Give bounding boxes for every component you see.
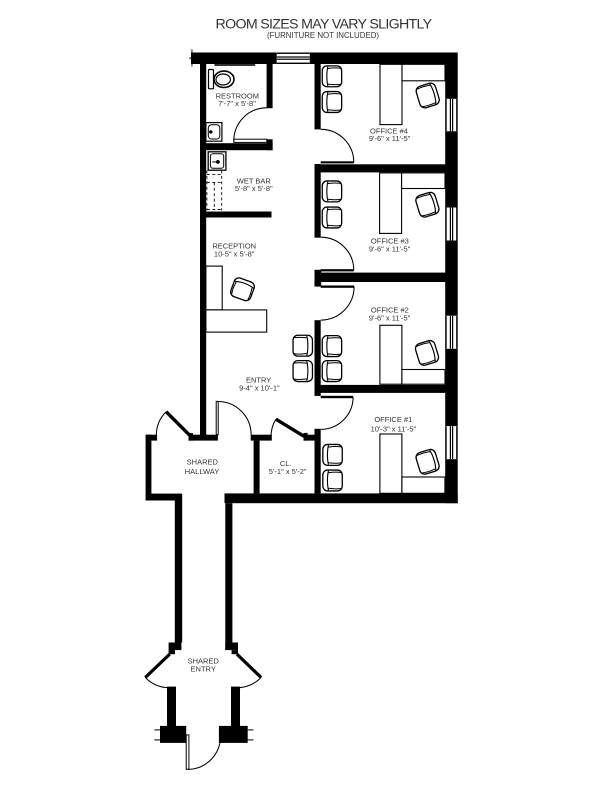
svg-text:10'-3" x 11'-5": 10'-3" x 11'-5" [371, 425, 417, 434]
svg-text:OFFICE #1: OFFICE #1 [374, 415, 412, 424]
svg-text:HALLWAY: HALLWAY [185, 467, 219, 476]
svg-text:9-4" x 10'-1": 9-4" x 10'-1" [239, 383, 280, 392]
svg-text:10-5" x 5'-8": 10-5" x 5'-8" [214, 249, 255, 258]
svg-text:9'-6" x 11'-5": 9'-6" x 11'-5" [369, 313, 411, 322]
svg-text:5'-8" x 5'-8": 5'-8" x 5'-8" [235, 184, 273, 193]
svg-text:9'-6" x 11'-5": 9'-6" x 11'-5" [369, 244, 411, 253]
svg-text:5'-1" x 5'-2": 5'-1" x 5'-2" [269, 467, 307, 476]
svg-text:ENTRY: ENTRY [191, 665, 216, 674]
svg-text:(FURNITURE NOT INCLUDED): (FURNITURE NOT INCLUDED) [267, 31, 379, 40]
svg-text:SHARED: SHARED [187, 457, 219, 466]
svg-text:9'-6" x 11'-5": 9'-6" x 11'-5" [369, 134, 411, 143]
svg-text:7'-7" x 5'-8": 7'-7" x 5'-8" [218, 99, 256, 108]
